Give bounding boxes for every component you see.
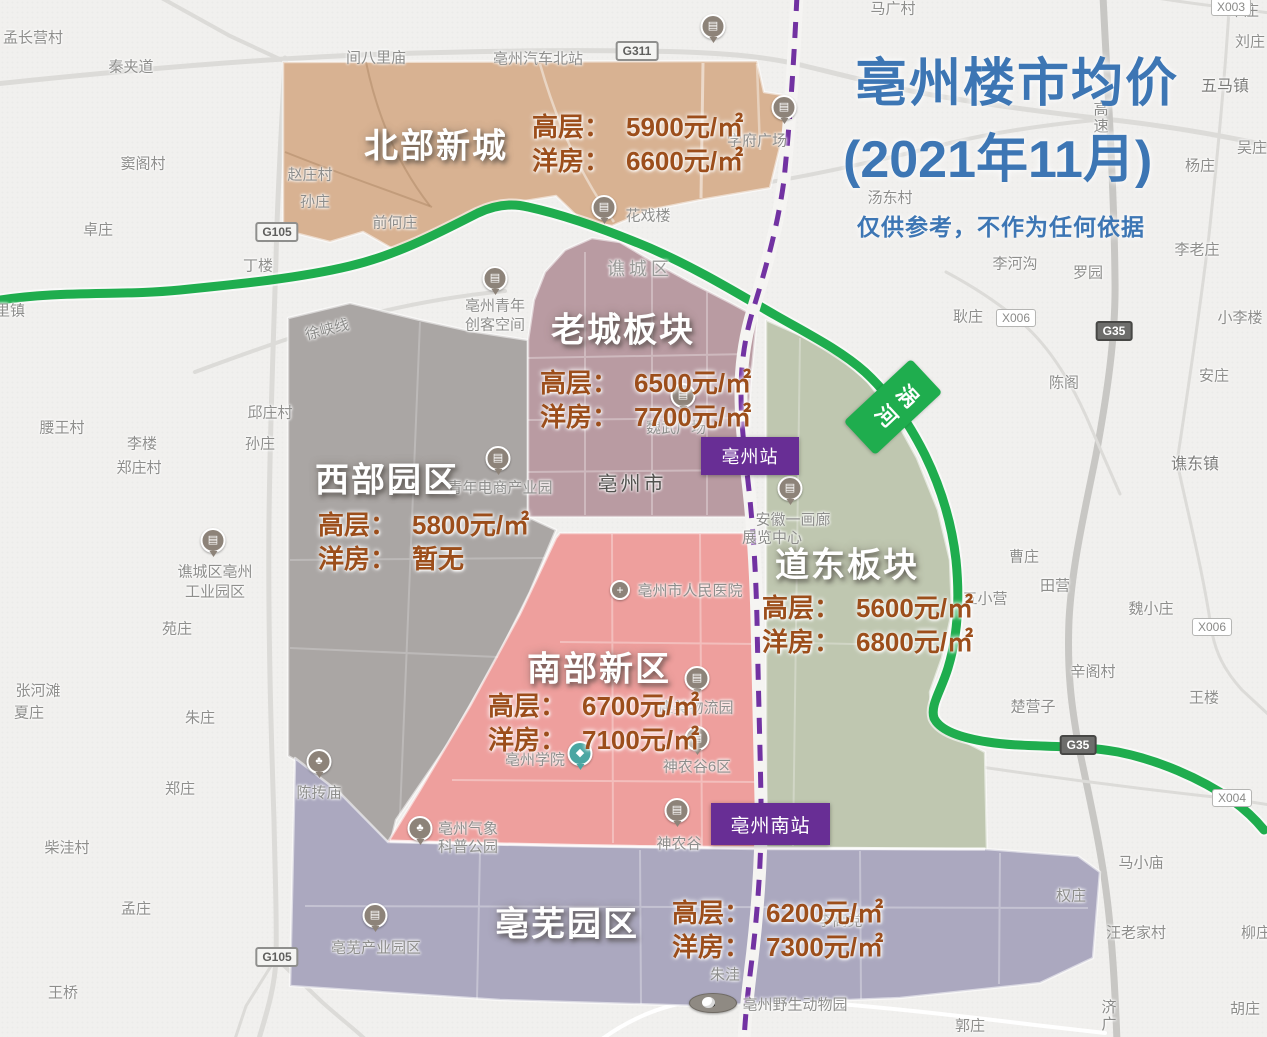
price-label: 高层： (532, 110, 610, 144)
price-value: 5900元/㎡ (626, 110, 743, 144)
page-title-date: (2021年11月) (843, 134, 1179, 186)
prices-oldtown: 高层：6500元/㎡ 洋房：7700元/㎡ (540, 366, 751, 434)
district-label-bowu: 亳芜园区 (495, 897, 639, 946)
bozhou-housing-price-map: 孟长营村秦夹道马广村朱庄刘庄窦阁村卓庄间八里庙亳州汽车北站赵庄村孙庄前何庄丁楼学… (0, 0, 1267, 1037)
price-value: 6200元/㎡ (766, 896, 883, 930)
price-line-yangfang: 洋房：7100元/㎡ (488, 723, 699, 757)
price-line-gaoceng: 高层：5800元/㎡ (318, 508, 529, 542)
price-line-gaoceng: 高层：6200元/㎡ (672, 896, 883, 930)
price-label: 洋房： (672, 930, 750, 964)
price-label: 洋房： (532, 144, 610, 178)
price-label: 高层： (318, 508, 396, 542)
prices-south: 高层：6700元/㎡ 洋房：7100元/㎡ (488, 689, 699, 757)
price-value: 6600元/㎡ (626, 144, 743, 178)
bozhou-station-badge: 亳州站 (701, 437, 799, 475)
price-value: 7300元/㎡ (766, 930, 883, 964)
price-line-gaoceng: 高层：6700元/㎡ (488, 689, 699, 723)
price-label: 高层： (672, 896, 750, 930)
district-label-west: 西部园区 (315, 453, 459, 502)
price-value: 5800元/㎡ (412, 508, 529, 542)
title-block: 亳州楼市均价 (2021年11月) 仅供参考，不作为任何依据 (843, 58, 1179, 242)
district-label-south: 南部新区 (527, 642, 671, 691)
price-label: 高层： (540, 366, 618, 400)
price-label: 洋房： (318, 542, 396, 576)
district-label-east: 道东板块 (775, 538, 919, 587)
price-value: 6800元/㎡ (856, 625, 973, 659)
price-value: 7700元/㎡ (634, 400, 751, 434)
price-line-gaoceng: 高层：5900元/㎡ (532, 110, 743, 144)
price-value: 6500元/㎡ (634, 366, 751, 400)
road-g105-west (258, 58, 285, 1037)
price-line-gaoceng: 高层：6500元/㎡ (540, 366, 751, 400)
price-line-yangfang: 洋房：6600元/㎡ (532, 144, 743, 178)
price-line-yangfang: 洋房：暂无 (318, 542, 529, 576)
district-label-oldtown: 老城板块 (551, 303, 695, 352)
road-east-villages (1177, 10, 1267, 716)
prices-east: 高层：5600元/㎡ 洋房：6800元/㎡ (762, 591, 973, 659)
prices-north: 高层：5900元/㎡ 洋房：6600元/㎡ (532, 110, 743, 178)
price-label: 洋房： (762, 625, 840, 659)
prices-west: 高层：5800元/㎡ 洋房：暂无 (318, 508, 529, 576)
disclaimer-text: 仅供参考，不作为任何依据 (857, 208, 1179, 242)
district-label-north: 北部新城 (364, 119, 508, 168)
price-value: 6700元/㎡ (582, 689, 699, 723)
price-label: 洋房： (488, 723, 566, 757)
road-topleft-diagonal (158, 0, 286, 62)
price-value: 暂无 (412, 542, 464, 576)
price-value: 5600元/㎡ (856, 591, 973, 625)
price-line-yangfang: 洋房：7700元/㎡ (540, 400, 751, 434)
price-line-gaoceng: 高层：5600元/㎡ (762, 591, 973, 625)
price-value: 7100元/㎡ (582, 723, 699, 757)
page-title: 亳州楼市均价 (855, 58, 1179, 110)
price-label: 高层： (488, 689, 566, 723)
price-label: 高层： (762, 591, 840, 625)
price-line-yangfang: 洋房：7300元/㎡ (672, 930, 883, 964)
bozhou-south-station-badge: 亳州南站 (711, 803, 830, 845)
price-line-yangfang: 洋房：6800元/㎡ (762, 625, 973, 659)
road-x003 (1145, 0, 1267, 13)
price-label: 洋房： (540, 400, 618, 434)
prices-bowu: 高层：6200元/㎡ 洋房：7300元/㎡ (672, 896, 883, 964)
